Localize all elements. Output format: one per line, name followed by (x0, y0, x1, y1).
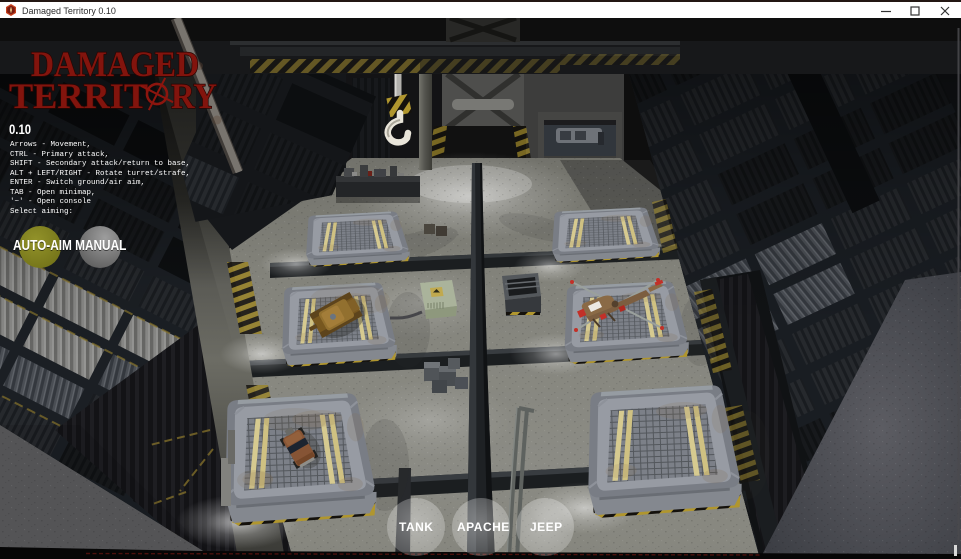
svg-text:RY: RY (171, 76, 217, 116)
svg-text:TERRIT: TERRIT (9, 76, 148, 116)
